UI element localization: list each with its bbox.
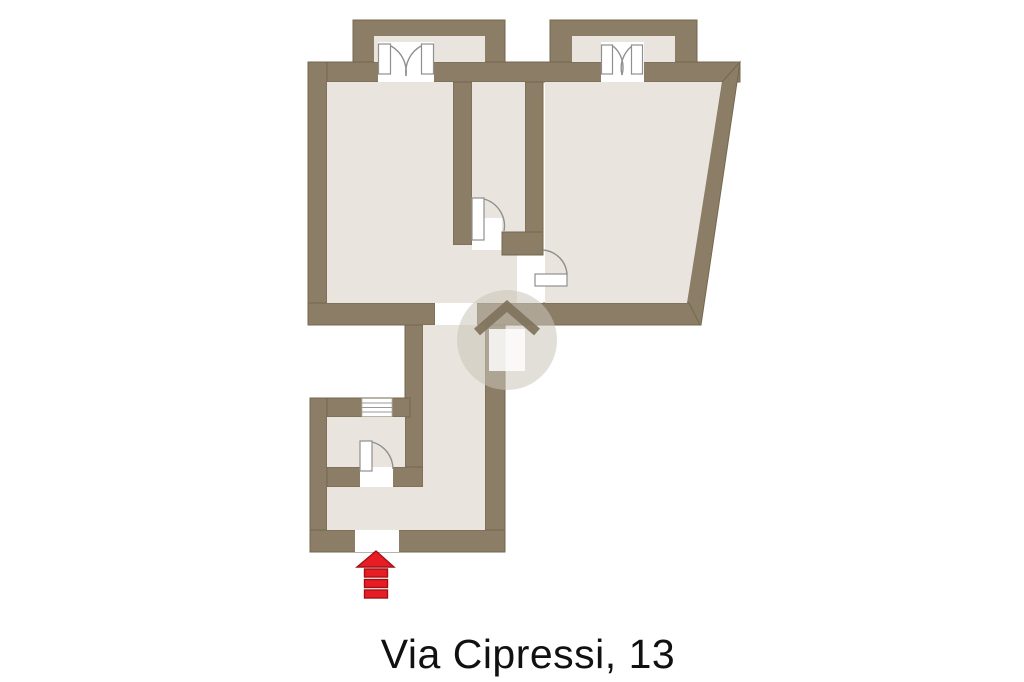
arrow-bar [365, 580, 388, 588]
arrow-bar [365, 569, 388, 577]
door-leaf [602, 45, 613, 74]
staircase [362, 399, 392, 417]
entry-hall-floor [327, 487, 485, 530]
middle-room-bottom-wall-stub [502, 232, 543, 255]
entrance-opening [355, 530, 399, 552]
door-leaf [422, 44, 434, 74]
entrance-arrow-icon [357, 551, 394, 598]
arrow-head [357, 551, 394, 567]
lower-wing-left-wall [310, 398, 327, 552]
watermark-house-body [489, 329, 525, 371]
left-outer-wall [308, 62, 327, 325]
door-leaf [379, 44, 391, 74]
arrow-bar [365, 590, 388, 598]
door-leaf [632, 45, 643, 74]
door-leaf [360, 441, 372, 471]
wall-between-left-and-middle-room [453, 82, 472, 245]
address-caption: Via Cipressi, 13 [128, 631, 928, 678]
floor-plan-page: Via Cipressi, 13 [0, 0, 1024, 682]
wall-between-middle-and-right-room [525, 82, 543, 250]
entry-bottom-wall [310, 530, 505, 552]
door-leaf [535, 274, 567, 286]
watermark-house-logo [457, 290, 557, 390]
door-leaf [472, 198, 484, 240]
floor-plan-drawing [0, 0, 1024, 682]
top-wall [308, 62, 740, 82]
bottom-wall-left-section [308, 303, 435, 325]
